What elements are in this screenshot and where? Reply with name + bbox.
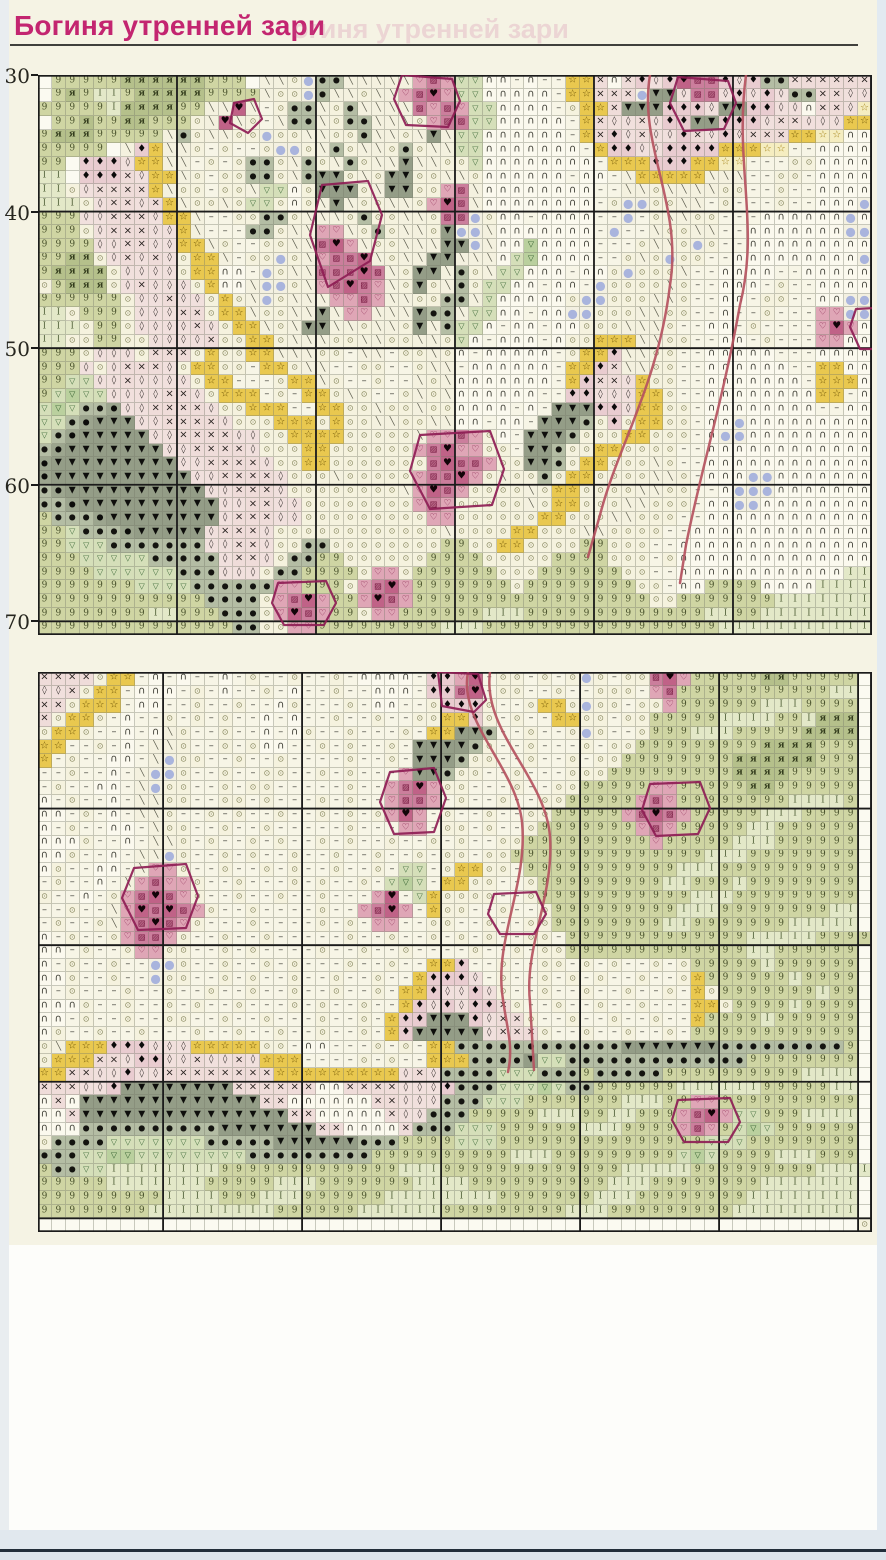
stitch-cell: 9: [52, 362, 66, 376]
magazine-page: Богиня утренней зари огиня утренней зари…: [0, 0, 886, 1560]
stitch-cell: –: [650, 553, 664, 567]
stitch-cell: –: [552, 362, 566, 376]
stitch-cell: –: [233, 768, 247, 782]
stitch-cell: ∩: [107, 768, 121, 782]
stitch-cell: ∩: [566, 253, 580, 267]
stitch-cell: 9: [802, 836, 816, 850]
stitch-cell: ⊙: [650, 362, 664, 376]
stitch-cell: ×: [302, 1109, 316, 1123]
stitch-cell: ⊙: [650, 580, 664, 594]
stitch-cell: ⊙: [219, 171, 233, 185]
stitch-cell: ●: [691, 1054, 705, 1068]
stitch-cell: ∩: [330, 1095, 344, 1109]
stitch-cell: 9: [330, 608, 344, 622]
stitch-cell: –: [358, 781, 372, 795]
stitch-cell: ♡: [441, 75, 455, 89]
scan-bottom-under: [0, 1552, 886, 1560]
stitch-cell: 9: [469, 608, 483, 622]
stitch-cell: 9: [733, 986, 747, 1000]
stitch-cell: ▼: [580, 403, 594, 417]
stitch-cell: ♡: [121, 891, 135, 905]
stitch-cell: ⊙: [538, 539, 552, 553]
stitch-cell: ╲: [677, 212, 691, 226]
stitch-cell: ◊: [205, 321, 219, 335]
stitch-cell: ◊: [274, 471, 288, 485]
stitch-cell: [538, 1218, 552, 1232]
stitch-cell: ⊙: [469, 877, 483, 891]
stitch-cell: ⊙: [233, 795, 247, 809]
stitch-cell: I: [622, 1191, 636, 1205]
stitch-cell: ×: [177, 416, 191, 430]
stitch-cell: ⊙: [316, 795, 330, 809]
stitch-cell: ⊙: [594, 512, 608, 526]
stitch-cell: ◊: [719, 89, 733, 103]
stitch-cell: –: [677, 389, 691, 403]
stitch-cell: 9: [608, 836, 622, 850]
stitch-cell: –: [80, 863, 94, 877]
stitch-cell: 9: [775, 1027, 789, 1041]
stitch-cell: –: [802, 171, 816, 185]
stitch-cell: ☆: [622, 157, 636, 171]
stitch-cell: ♡: [413, 75, 427, 89]
stitch-cell: ∩: [747, 348, 761, 362]
stitch-cell: ●: [622, 266, 636, 280]
stitch-cell: 9: [483, 1109, 497, 1123]
stitch-cell: ⊙: [94, 253, 108, 267]
stitch-cell: 9: [844, 1041, 858, 1055]
stitch-cell: ×: [205, 416, 219, 430]
stitch-cell: ⊙: [372, 972, 386, 986]
stitch-cell: ╲: [135, 863, 149, 877]
stitch-cell: ╲: [455, 307, 469, 321]
stitch-cell: 9: [483, 1177, 497, 1191]
stitch-cell: ∩: [761, 403, 775, 417]
stitch-cell: ∩: [789, 457, 803, 471]
stitch-cell: ♡: [358, 904, 372, 918]
stitch-cell: ╲: [302, 335, 316, 349]
stitch-cell: ☆: [552, 498, 566, 512]
stitch-cell: ☆: [566, 498, 580, 512]
stitch-cell: –: [385, 863, 399, 877]
stitch-cell: 9: [524, 1164, 538, 1178]
stitch-cell: 9: [719, 1164, 733, 1178]
stitch-cell: ♥: [441, 444, 455, 458]
stitch-cell: ♡: [663, 795, 677, 809]
stitch-cell: –: [705, 307, 719, 321]
stitch-cell: [80, 1218, 94, 1232]
stitch-cell: ∩: [830, 498, 844, 512]
stitch-cell: ×: [594, 89, 608, 103]
stitch-cell: –: [205, 945, 219, 959]
stitch-cell: –: [497, 768, 511, 782]
stitch-cell: ♡: [650, 686, 664, 700]
stitch-cell: –: [246, 713, 260, 727]
stitch-cell: ⊙: [344, 512, 358, 526]
stitch-cell: –: [52, 959, 66, 973]
stitch-cell: ⊙: [66, 904, 80, 918]
stitch-cell: ∩: [511, 389, 525, 403]
stitch-cell: 9: [38, 1205, 52, 1219]
stitch-cell: –: [594, 740, 608, 754]
stitch-cell: 9: [705, 822, 719, 836]
stitch-cell: –: [233, 686, 247, 700]
stitch-cell: ╲: [413, 430, 427, 444]
stitch-cell: ♡: [816, 335, 830, 349]
stitch-cell: 9: [524, 608, 538, 622]
stitch-cell: 9: [566, 553, 580, 567]
stitch-cell: 9: [733, 863, 747, 877]
stitch-cell: –: [385, 986, 399, 1000]
stitch-cell: ◊: [469, 972, 483, 986]
stitch-cell: ∩: [52, 1123, 66, 1137]
stitch-cell: 9: [260, 1177, 274, 1191]
stitch-cell: ⊙: [358, 1000, 372, 1014]
stitch-cell: –: [608, 986, 622, 1000]
stitch-cell: 9: [594, 608, 608, 622]
stitch-cell: ⊙: [274, 457, 288, 471]
stitch-cell: ♡: [372, 891, 386, 905]
stitch-cell: ∩: [789, 498, 803, 512]
stitch-cell: ∩: [219, 280, 233, 294]
stitch-cell: 9: [552, 836, 566, 850]
stitch-cell: ⊙: [358, 416, 372, 430]
stitch-cell: ∩: [497, 239, 511, 253]
stitch-cell: –: [149, 1000, 163, 1014]
stitch-cell: ♡: [302, 621, 316, 635]
stitch-cell: ▽: [455, 89, 469, 103]
stitch-cell: ⊙: [399, 553, 413, 567]
stitch-cell: ⊙: [552, 945, 566, 959]
stitch-cell: ∩: [802, 239, 816, 253]
stitch-cell: ▽: [191, 1136, 205, 1150]
stitch-cell: ⊙: [372, 485, 386, 499]
stitch-cell: ♡: [149, 945, 163, 959]
stitch-cell: –: [552, 768, 566, 782]
stitch-cell: –: [622, 1013, 636, 1027]
stitch-cell: I: [830, 594, 844, 608]
stitch-cell: ▨: [455, 212, 469, 226]
stitch-cell: –: [344, 986, 358, 1000]
stitch-cell: ◊: [163, 253, 177, 267]
stitch-cell: ⊙: [344, 212, 358, 226]
stitch-cell: I: [691, 727, 705, 741]
stitch-cell: –: [524, 768, 538, 782]
stitch-cell: 9: [80, 1191, 94, 1205]
stitch-cell: ∩: [358, 1109, 372, 1123]
stitch-cell: [52, 1218, 66, 1232]
stitch-cell: 9: [844, 809, 858, 823]
stitch-cell: ⊙: [663, 375, 677, 389]
stitch-cell: ∩: [775, 403, 789, 417]
stitch-cell: ⊙: [455, 822, 469, 836]
stitch-cell: I: [580, 1205, 594, 1219]
stitch-cell: 9: [483, 594, 497, 608]
stitch-cell: –: [191, 768, 205, 782]
stitch-cell: ╲: [399, 253, 413, 267]
stitch-cell: 9: [719, 594, 733, 608]
stitch-cell: ▽: [483, 294, 497, 308]
stitch-cell: ∩: [497, 225, 511, 239]
stitch-cell: –: [219, 809, 233, 823]
stitch-cell: ▽: [135, 1136, 149, 1150]
stitch-cell: ▨: [650, 822, 664, 836]
stitch-cell: ⊙: [566, 727, 580, 741]
stitch-cell: ∩: [497, 171, 511, 185]
stitch-cell: ∩: [816, 348, 830, 362]
stitch-cell: –: [761, 280, 775, 294]
stitch-cell: 9: [594, 795, 608, 809]
stitch-cell: ⊙: [330, 539, 344, 553]
stitch-cell: 9: [52, 294, 66, 308]
stitch-cell: я: [775, 768, 789, 782]
stitch-cell: 9: [719, 768, 733, 782]
stitch-cell: ╲: [399, 294, 413, 308]
stitch-cell: ⊙: [385, 430, 399, 444]
stitch-cell: –: [483, 959, 497, 973]
stitch-cell: ⊙: [246, 836, 260, 850]
stitch-cell: ╲: [385, 321, 399, 335]
stitch-cell: 9: [761, 795, 775, 809]
stitch-cell: 9: [816, 1150, 830, 1164]
stitch-cell: 9: [622, 621, 636, 635]
stitch-cell: ●: [52, 444, 66, 458]
stitch-cell: ╲: [413, 389, 427, 403]
stitch-cell: –: [80, 781, 94, 795]
stitch-cell: I: [719, 850, 733, 864]
stitch-cell: ╲: [288, 294, 302, 308]
stitch-cell: 9: [511, 1205, 525, 1219]
stitch-cell: ∩: [330, 1109, 344, 1123]
stitch-cell: –: [121, 972, 135, 986]
stitch-cell: ⊙: [358, 512, 372, 526]
stitch-cell: ×: [219, 430, 233, 444]
stitch-cell: [858, 727, 872, 741]
stitch-cell: 9: [705, 1177, 719, 1191]
stitch-cell: ⊙: [399, 130, 413, 144]
stitch-cell: –: [205, 686, 219, 700]
stitch-cell: ∩: [358, 1095, 372, 1109]
stitch-cell: ╲: [344, 389, 358, 403]
stitch-cell: 9: [622, 1136, 636, 1150]
stitch-cell: 9: [636, 608, 650, 622]
stitch-cell: I: [274, 1177, 288, 1191]
stitch-cell: ⊙: [358, 430, 372, 444]
stitch-cell: ⊙: [191, 1027, 205, 1041]
stitch-cell: –: [719, 212, 733, 226]
stitch-cell: 9: [219, 89, 233, 103]
stitch-cell: я: [66, 130, 80, 144]
stitch-cell: ⊙: [66, 822, 80, 836]
stitch-cell: ●: [580, 1041, 594, 1055]
stitch-cell: ∩: [830, 280, 844, 294]
stitch-cell: ╲: [413, 130, 427, 144]
stitch-cell: ⊙: [177, 863, 191, 877]
stitch-cell: ☆: [316, 1068, 330, 1082]
stitch-cell: 9: [705, 1013, 719, 1027]
stitch-cell: 9: [636, 877, 650, 891]
stitch-cell: 9: [552, 918, 566, 932]
stitch-cell: ∩: [830, 266, 844, 280]
stitch-cell: ◊: [149, 294, 163, 308]
stitch-cell: ╲: [358, 171, 372, 185]
stitch-cell: ⊙: [330, 512, 344, 526]
stitch-cell: 9: [38, 212, 52, 226]
stitch-cell: ⊙: [163, 1000, 177, 1014]
stitch-cell: ∩: [761, 498, 775, 512]
stitch-cell: ⊙: [288, 444, 302, 458]
stitch-cell: ∩: [38, 1123, 52, 1137]
stitch-cell: ∩: [775, 389, 789, 403]
stitch-cell: ⊙: [538, 986, 552, 1000]
stitch-cell: 9: [691, 1177, 705, 1191]
stitch-cell: ∩: [802, 102, 816, 116]
stitch-cell: ∩: [455, 375, 469, 389]
stitch-cell: 9: [636, 891, 650, 905]
stitch-cell: –: [483, 836, 497, 850]
stitch-cell: ⊙: [677, 972, 691, 986]
stitch-cell: ⊙: [358, 225, 372, 239]
stitch-cell: I: [802, 713, 816, 727]
stitch-cell: ☆: [246, 348, 260, 362]
stitch-cell: 9: [121, 608, 135, 622]
stitch-cell: ♥: [385, 580, 399, 594]
stitch-cell: 9: [816, 1123, 830, 1137]
stitch-cell: ●: [733, 1054, 747, 1068]
stitch-cell: [135, 1218, 149, 1232]
stitch-cell: 9: [163, 621, 177, 635]
stitch-cell: –: [302, 795, 316, 809]
stitch-cell: –: [233, 972, 247, 986]
stitch-cell: ⊙: [385, 1054, 399, 1068]
stitch-cell: 9: [802, 1000, 816, 1014]
stitch-cell: –: [608, 239, 622, 253]
stitch-cell: ●: [358, 130, 372, 144]
stitch-cell: ☆: [594, 102, 608, 116]
stitch-cell: ∩: [761, 567, 775, 581]
stitch-cell: ◊: [121, 157, 135, 171]
stitch-cell: ◊: [260, 539, 274, 553]
stitch-cell: я: [149, 102, 163, 116]
stitch-cell: I: [149, 608, 163, 622]
stitch-cell: ◊: [135, 294, 149, 308]
stitch-cell: ⊙: [219, 932, 233, 946]
stitch-cell: 9: [775, 727, 789, 741]
page-left-margin: [0, 0, 9, 1560]
stitch-cell: ∩: [344, 1095, 358, 1109]
stitch-cell: ⊙: [246, 212, 260, 226]
stitch-cell: ▽: [677, 1150, 691, 1164]
stitch-cell: –: [205, 740, 219, 754]
stitch-cell: 9: [789, 904, 803, 918]
stitch-cell: –: [219, 212, 233, 226]
stitch-cell: ☆: [636, 430, 650, 444]
stitch-cell: I: [177, 1191, 191, 1205]
stitch-cell: ▼: [191, 485, 205, 499]
stitch-cell: ▨: [413, 89, 427, 103]
stitch-cell: 9: [191, 621, 205, 635]
stitch-cell: [858, 863, 872, 877]
stitch-cell: ⊙: [650, 699, 664, 713]
stitch-cell: 9: [38, 512, 52, 526]
stitch-cell: ♦: [663, 75, 677, 89]
stitch-cell: ⊙: [205, 986, 219, 1000]
stitch-cell: ☆: [205, 266, 219, 280]
stitch-cell: ●: [316, 1150, 330, 1164]
stitch-cell: –: [608, 672, 622, 686]
stitch-cell: ☆: [789, 130, 803, 144]
stitch-cell: ×: [191, 321, 205, 335]
stitch-cell: 9: [580, 918, 594, 932]
stitch-cell: ▽: [455, 321, 469, 335]
stitch-cell: 9: [816, 836, 830, 850]
stitch-cell: ∩: [761, 389, 775, 403]
stitch-cell: ♡: [413, 444, 427, 458]
stitch-cell: ◊: [94, 225, 108, 239]
stitch-cell: ╲: [358, 102, 372, 116]
stitch-cell: ☆: [622, 335, 636, 349]
stitch-cell: ☆: [566, 75, 580, 89]
stitch-cell: –: [219, 225, 233, 239]
stitch-cell: ☆: [719, 157, 733, 171]
stitch-cell: ▼: [121, 444, 135, 458]
stitch-cell: 9: [135, 621, 149, 635]
stitch-cell: 9: [636, 1205, 650, 1219]
stitch-cell: 9: [789, 672, 803, 686]
stitch-cell: ☆: [775, 143, 789, 157]
stitch-cell: ⊙: [330, 672, 344, 686]
stitch-cell: I: [121, 1164, 135, 1178]
stitch-cell: –: [274, 822, 288, 836]
stitch-cell: 9: [52, 348, 66, 362]
stitch-cell: –: [469, 822, 483, 836]
stitch-cell: –: [747, 307, 761, 321]
stitch-cell: ☆: [219, 307, 233, 321]
stitch-cell: ▼: [205, 498, 219, 512]
stitch-cell: ⊙: [302, 471, 316, 485]
stitch-cell: ●: [608, 1054, 622, 1068]
stitch-cell: 9: [455, 608, 469, 622]
stitch-cell: ♦: [691, 143, 705, 157]
stitch-cell: [636, 1218, 650, 1232]
stitch-cell: ⊙: [94, 918, 108, 932]
stitch-cell: ⊙: [260, 253, 274, 267]
stitch-cell: –: [566, 266, 580, 280]
stitch-cell: 9: [66, 1205, 80, 1219]
stitch-cell: –: [94, 822, 108, 836]
stitch-cell: ⊙: [219, 348, 233, 362]
stitch-cell: ☆: [246, 321, 260, 335]
stitch-cell: ⊙: [246, 850, 260, 864]
stitch-cell: ⊙: [219, 321, 233, 335]
stitch-cell: ⊙: [316, 526, 330, 540]
stitch-cell: ∩: [358, 672, 372, 686]
stitch-cell: ⊙: [274, 130, 288, 144]
stitch-cell: ∩: [538, 116, 552, 130]
stitch-cell: –: [302, 891, 316, 905]
stitch-cell: –: [94, 727, 108, 741]
stitch-cell: –: [358, 836, 372, 850]
stitch-cell: I: [66, 198, 80, 212]
stitch-cell: ╲: [385, 89, 399, 103]
stitch-cell: I: [802, 608, 816, 622]
stitch-cell: –: [552, 348, 566, 362]
stitch-cell: I: [733, 713, 747, 727]
stitch-cell: [858, 672, 872, 686]
stitch-cell: [246, 75, 260, 89]
stitch-cell: –: [650, 539, 664, 553]
stitch-cell: 9: [66, 362, 80, 376]
stitch-cell: I: [816, 608, 830, 622]
